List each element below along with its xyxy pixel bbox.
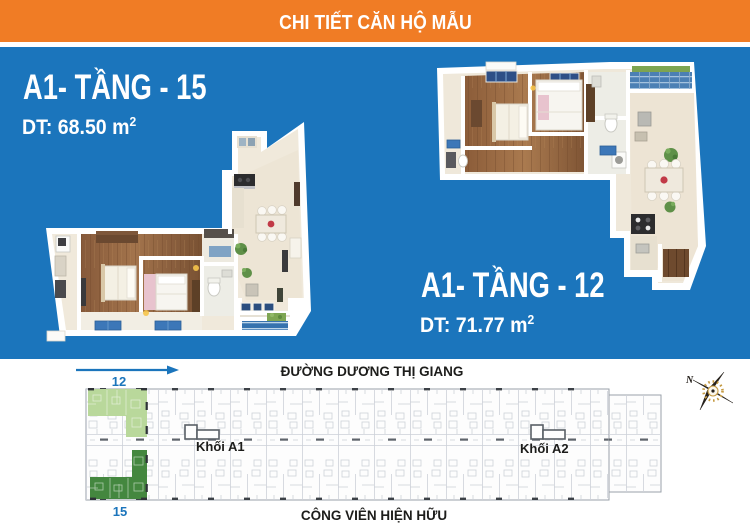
- svg-text:12: 12: [112, 374, 126, 389]
- svg-text:Khối A1: Khối A1: [196, 439, 245, 454]
- svg-text:CÔNG VIÊN HIỆN HỮU: CÔNG VIÊN HIỆN HỮU: [301, 508, 447, 523]
- svg-text:15: 15: [113, 504, 127, 519]
- svg-text:Khối A2: Khối A2: [520, 441, 569, 456]
- svg-text:N: N: [685, 375, 694, 386]
- svg-text:ĐƯỜNG DƯƠNG THỊ GIANG: ĐƯỜNG DƯƠNG THỊ GIANG: [281, 364, 464, 379]
